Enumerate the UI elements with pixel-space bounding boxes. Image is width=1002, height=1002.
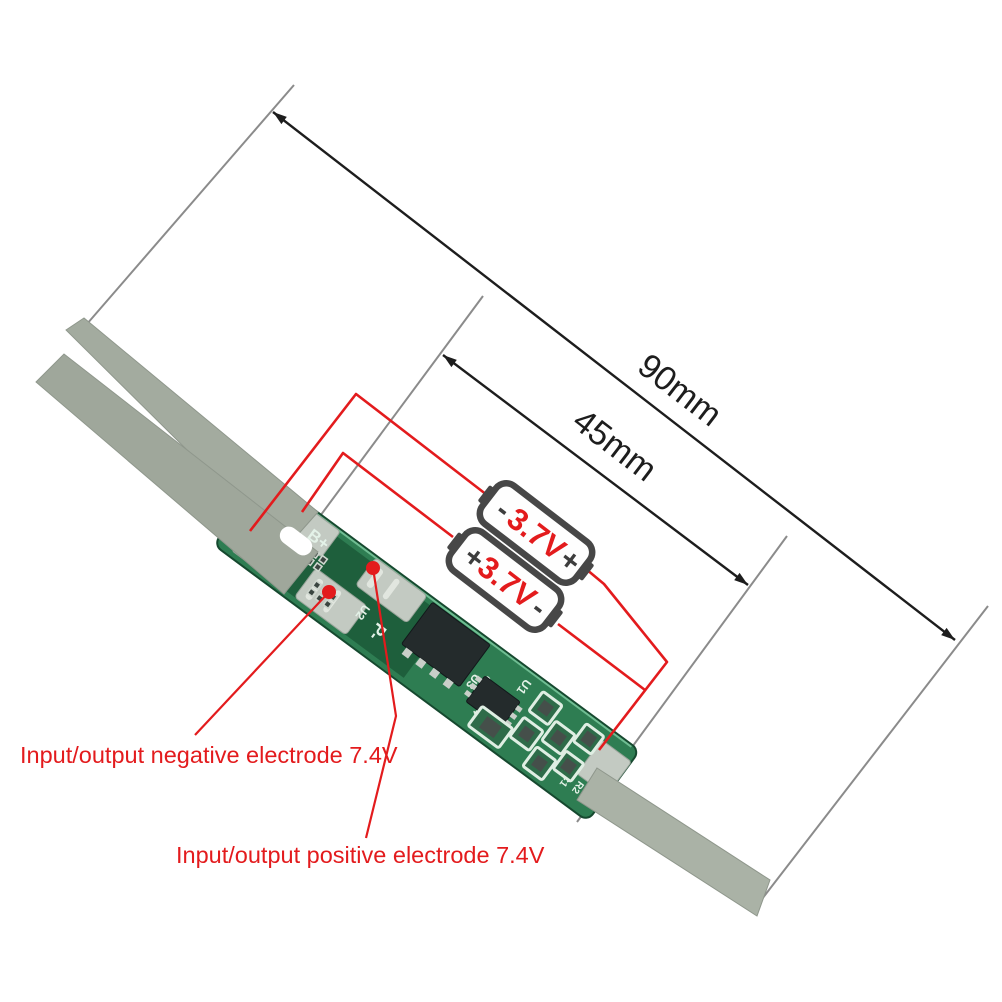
diagram-canvas: 90mm 45mm B+ B- P+ P- U3 U1 U (0, 0, 1002, 1002)
extension-line-outer-left (80, 85, 294, 332)
callout-negative-electrode: Input/output negative electrode 7.4V (20, 742, 398, 768)
leader-negative (195, 592, 329, 735)
nickel-strip-b-minus (36, 354, 318, 594)
extension-line-outer-right (762, 606, 988, 899)
nickel-strip-output (577, 768, 770, 916)
solder-point-p-minus (322, 585, 336, 599)
callout-positive-electrode: Input/output positive electrode 7.4V (176, 842, 545, 868)
dimension-45mm-label: 45mm (566, 401, 664, 489)
dimension-90mm-label: 90mm (631, 346, 729, 434)
product-diagram: 90mm 45mm B+ B- P+ P- U3 U1 U (0, 0, 1002, 1002)
wire-cell2-to-midpad (558, 624, 645, 690)
solder-point-p-plus (366, 561, 380, 575)
